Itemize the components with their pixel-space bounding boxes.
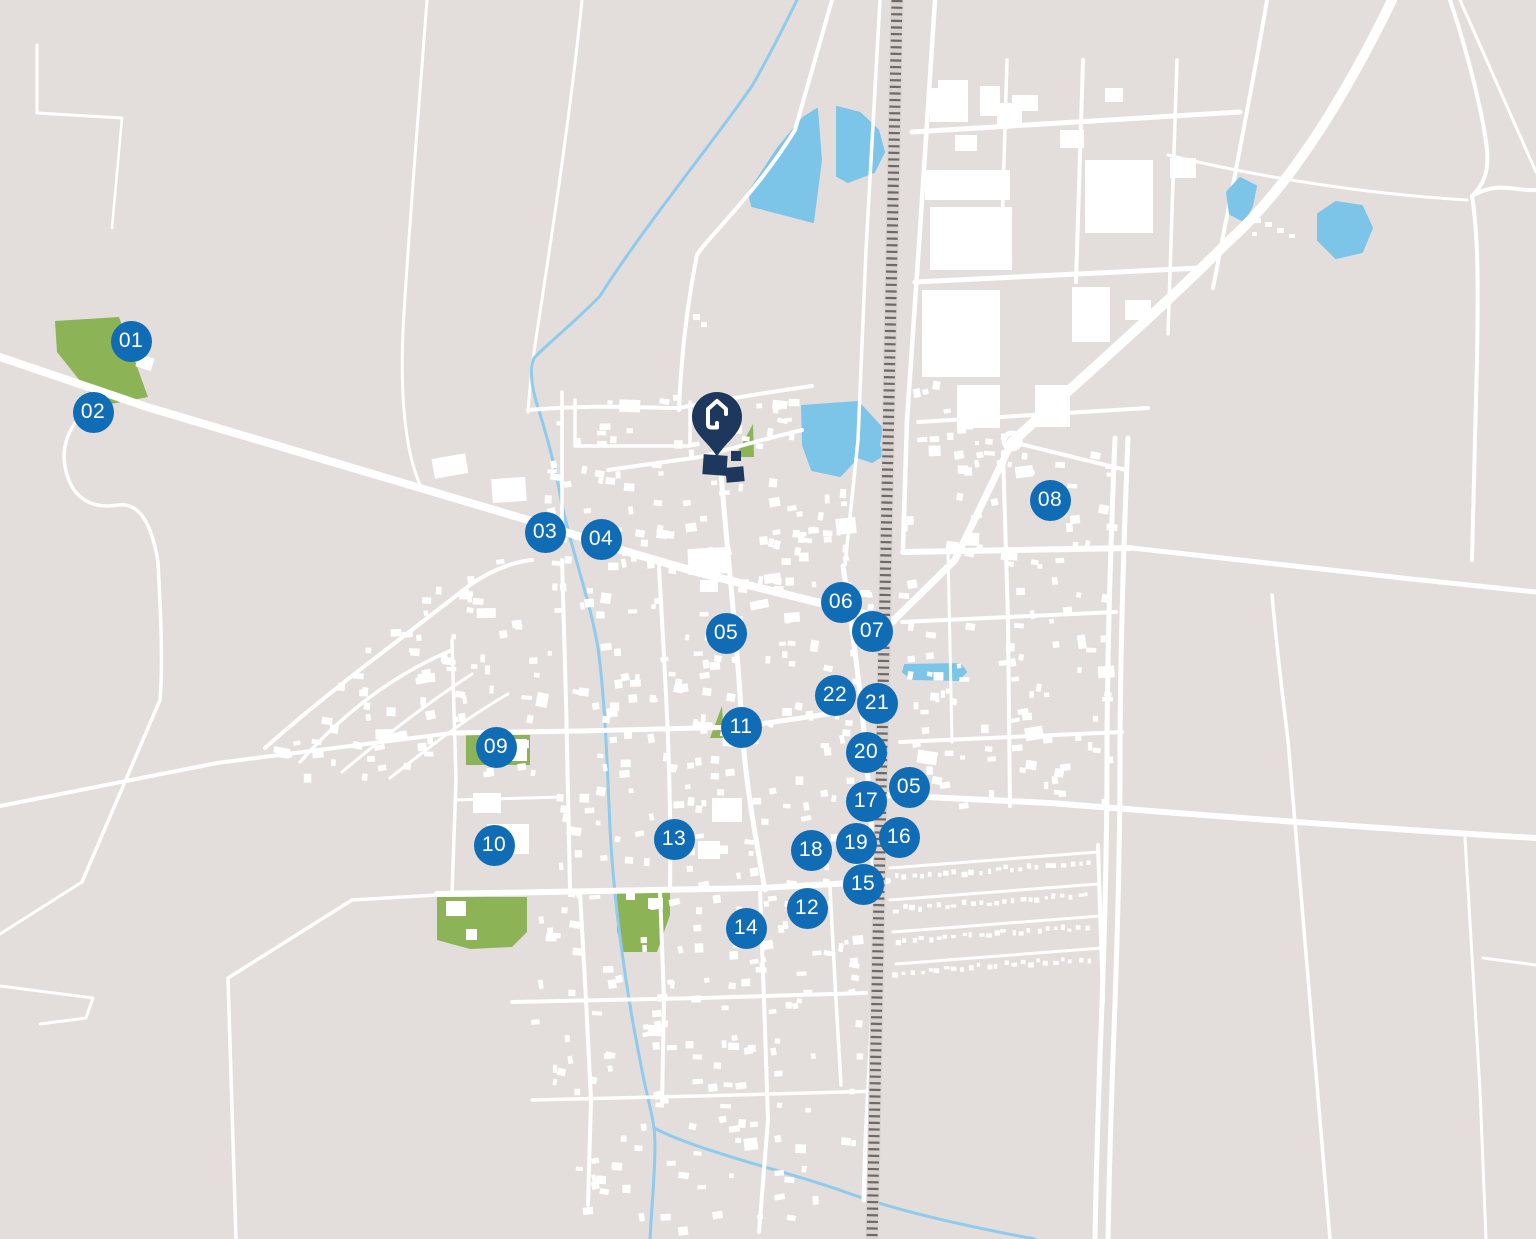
property-location-pin[interactable] [689, 379, 745, 461]
map-marker-10[interactable]: 10 [474, 825, 515, 866]
map-marker-17[interactable]: 17 [846, 781, 887, 822]
map-marker-18[interactable]: 18 [791, 830, 832, 871]
map-marker-08[interactable]: 08 [1030, 480, 1071, 521]
map-marker-01[interactable]: 01 [111, 321, 152, 362]
map-marker-04[interactable]: 04 [581, 519, 622, 560]
map-marker-22[interactable]: 22 [815, 675, 856, 716]
map-marker-02[interactable]: 02 [73, 392, 114, 433]
pin-graphic [689, 379, 745, 461]
map-marker-16[interactable]: 16 [879, 817, 920, 858]
map-marker-13[interactable]: 13 [654, 819, 695, 860]
map-marker-20[interactable]: 20 [846, 732, 887, 773]
map-marker-11[interactable]: 11 [721, 707, 762, 748]
map-marker-06[interactable]: 06 [821, 582, 862, 623]
map-marker-14[interactable]: 14 [726, 908, 767, 949]
map-marker-05[interactable]: 05 [706, 613, 747, 654]
map-marker-15[interactable]: 15 [843, 864, 884, 905]
map-marker-12[interactable]: 12 [787, 888, 828, 929]
map-canvas: 0102030405060708091011121314151617181920… [0, 0, 1536, 1239]
map-marker-21[interactable]: 21 [857, 683, 898, 724]
map-marker-07[interactable]: 07 [852, 611, 893, 652]
map-marker-03[interactable]: 03 [525, 512, 566, 553]
map-marker-19[interactable]: 19 [836, 823, 877, 864]
map-marker-09[interactable]: 09 [476, 727, 517, 768]
map-graphics [0, 0, 1536, 1239]
map-marker-05-east[interactable]: 05 [889, 767, 930, 808]
